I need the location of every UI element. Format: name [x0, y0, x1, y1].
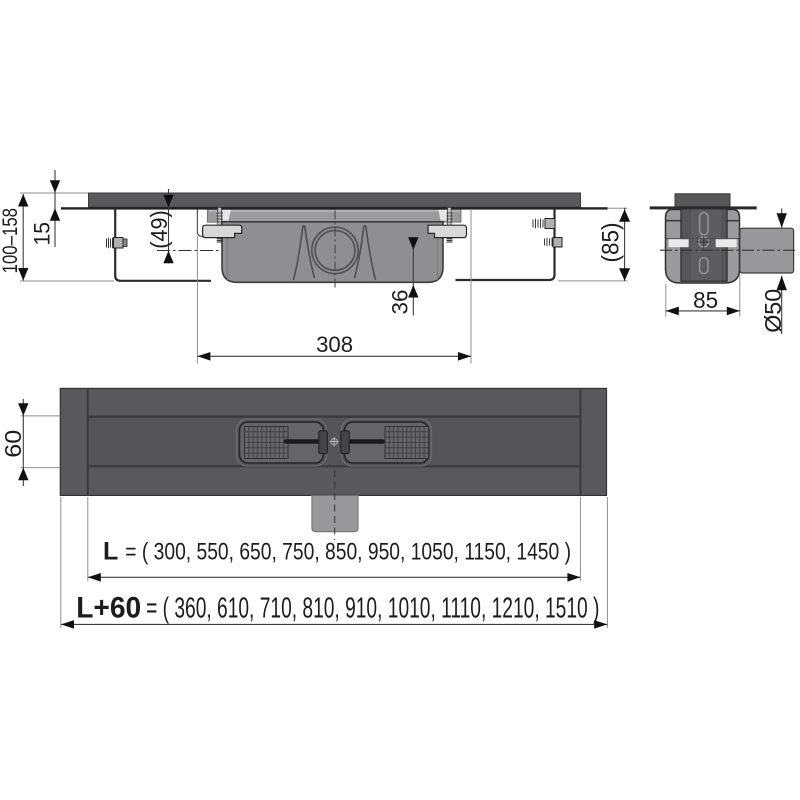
svg-text:85: 85 [693, 287, 718, 313]
svg-text:= ( 360, 610, 710, 810, 910, 1: = ( 360, 610, 710, 810, 910, 1010, 1110,… [146, 593, 599, 625]
svg-text:100–158: 100–158 [0, 208, 22, 273]
svg-text:L+60: L+60 [76, 592, 141, 625]
svg-text:= ( 300, 550, 650, 750, 850, 9: = ( 300, 550, 650, 750, 850, 950, 1050, … [125, 539, 571, 566]
svg-text:(49): (49) [146, 210, 172, 249]
svg-text:(85): (85) [598, 223, 625, 263]
svg-text:308: 308 [316, 332, 353, 357]
svg-text:Ø50: Ø50 [760, 289, 786, 333]
svg-text:L: L [103, 538, 118, 566]
svg-text:36: 36 [388, 290, 413, 315]
svg-text:60: 60 [0, 430, 26, 458]
svg-text:15: 15 [30, 222, 55, 246]
